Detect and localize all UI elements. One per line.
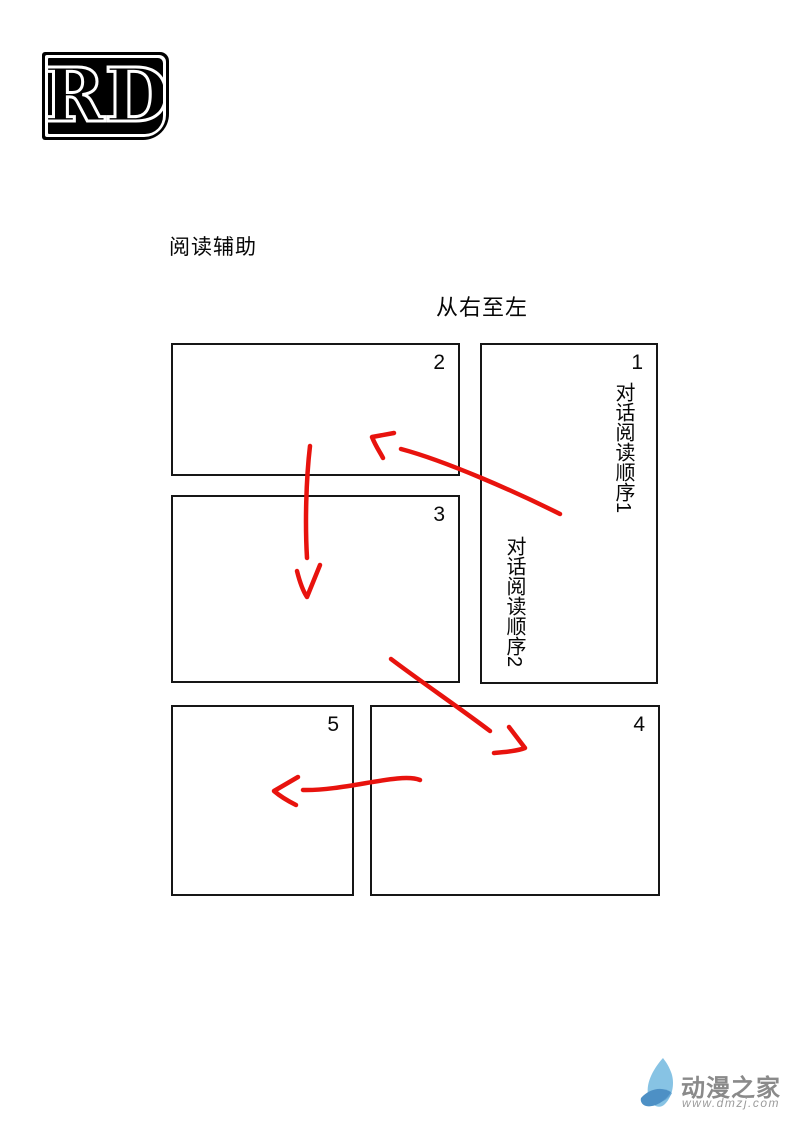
flame-dark-wing — [641, 1089, 671, 1106]
dmzj-watermark: 动漫之家 www.dmzj.com — [630, 1044, 790, 1119]
panel-3: 3 — [171, 495, 460, 683]
panel-4-number: 4 — [633, 713, 645, 737]
comic-reading-guide-page: RD 阅读辅助 从右至左 1 2 3 4 5 对话阅读顺序1 对话阅读顺序2 — [0, 0, 794, 1123]
panel-2: 2 — [171, 343, 460, 476]
rd-logo-text: RD — [48, 59, 163, 133]
panel-5-number: 5 — [327, 713, 339, 737]
panel-4: 4 — [370, 705, 660, 896]
dialogue-order-note-2: 对话阅读顺序2 — [502, 536, 526, 667]
panel-5: 5 — [171, 705, 354, 896]
panel-1-number: 1 — [631, 351, 643, 375]
panel-3-number: 3 — [433, 503, 445, 527]
direction-heading: 从右至左 — [436, 290, 528, 322]
rd-logo: RD — [42, 52, 169, 140]
rd-logo-letters-svg: RD — [48, 59, 163, 133]
rd-logo-core: RD — [48, 58, 163, 134]
reading-aid-heading: 阅读辅助 — [169, 231, 257, 261]
dialogue-order-note-1: 对话阅读顺序1 — [611, 382, 635, 513]
rd-logo-ring: RD — [45, 55, 166, 137]
dmzj-site-url: www.dmzj.com — [682, 1096, 780, 1110]
panel-2-number: 2 — [433, 351, 445, 375]
dmzj-flame-icon — [630, 1044, 680, 1119]
